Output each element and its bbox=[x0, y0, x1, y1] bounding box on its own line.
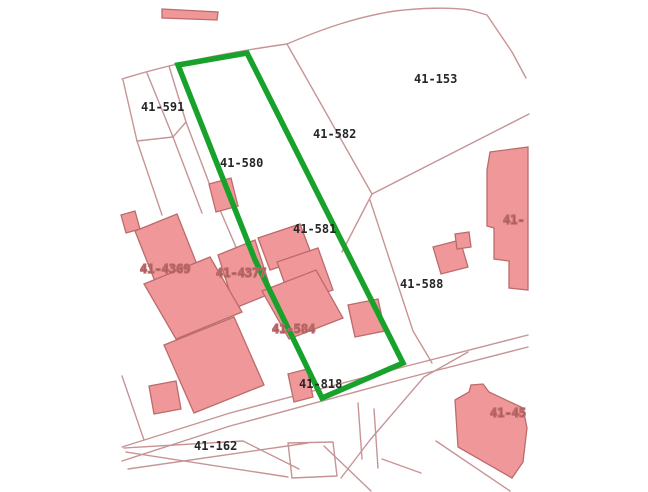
parcel-label-41-818: 41-818 bbox=[299, 377, 342, 391]
building-label-41-4377: 41-4377 bbox=[216, 266, 267, 280]
building-label-41-4369: 41-4369 bbox=[140, 262, 191, 276]
parcel-label-41-162: 41-162 bbox=[194, 439, 237, 453]
map-viewport[interactable]: 41-59141-58041-58241-15341-58141-58841-8… bbox=[0, 0, 648, 492]
parcel-label-41-591: 41-591 bbox=[141, 100, 184, 114]
building bbox=[149, 381, 181, 414]
parcel-label-41-588: 41-588 bbox=[400, 277, 443, 291]
parcel-label-41-581: 41-581 bbox=[293, 222, 336, 236]
building bbox=[162, 9, 218, 20]
building-label-41-45: 41-45 bbox=[490, 406, 526, 420]
building-label-41-edge: 41- bbox=[503, 213, 525, 227]
cadastral-map: 41-59141-58041-58241-15341-58141-58841-8… bbox=[0, 0, 648, 492]
building bbox=[455, 232, 471, 249]
building-41-45 bbox=[455, 384, 527, 478]
parcel-label-41-582: 41-582 bbox=[313, 127, 356, 141]
parcel-label-41-580: 41-580 bbox=[220, 156, 263, 170]
parcel-label-41-153: 41-153 bbox=[414, 72, 457, 86]
building-label-41-584: 41-584 bbox=[272, 322, 315, 336]
